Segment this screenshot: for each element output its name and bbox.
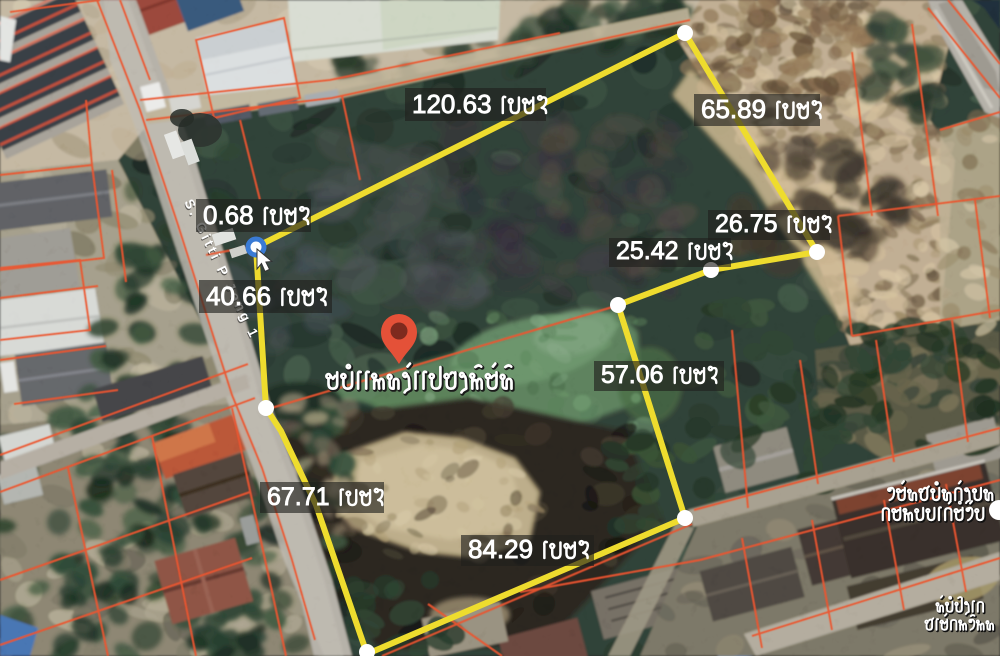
- svg-text:67.71: 67.71: [267, 483, 330, 511]
- svg-text:84.29: 84.29: [468, 534, 533, 564]
- svg-text:120.63: 120.63: [412, 89, 492, 119]
- svg-text:40.66: 40.66: [206, 281, 271, 311]
- svg-text:65.89: 65.89: [701, 94, 766, 124]
- svg-text:57.06: 57.06: [601, 361, 664, 389]
- svg-text:25.42: 25.42: [616, 237, 679, 265]
- svg-text:26.75: 26.75: [715, 210, 778, 238]
- svg-text:0.68: 0.68: [203, 200, 254, 230]
